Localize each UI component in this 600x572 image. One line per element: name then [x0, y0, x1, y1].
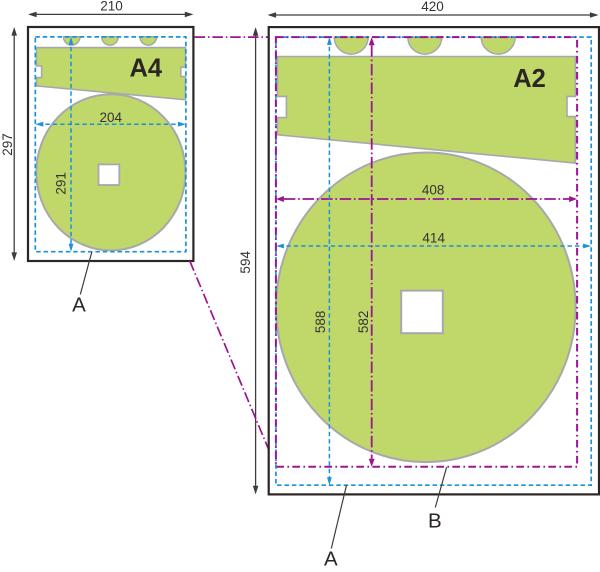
svg-text:291: 291 — [53, 172, 68, 195]
svg-text:297: 297 — [0, 133, 15, 156]
svg-text:582: 582 — [356, 311, 371, 334]
svg-text:408: 408 — [422, 183, 445, 198]
svg-text:204: 204 — [100, 110, 123, 125]
svg-text:414: 414 — [422, 231, 445, 246]
svg-text:A: A — [72, 293, 86, 316]
svg-text:420: 420 — [421, 0, 444, 14]
svg-text:588: 588 — [313, 311, 328, 334]
svg-text:B: B — [428, 510, 442, 533]
svg-text:A: A — [324, 548, 338, 571]
svg-text:594: 594 — [238, 251, 253, 274]
svg-text:A4: A4 — [129, 55, 162, 83]
svg-text:210: 210 — [100, 0, 123, 14]
svg-text:A2: A2 — [513, 65, 546, 93]
